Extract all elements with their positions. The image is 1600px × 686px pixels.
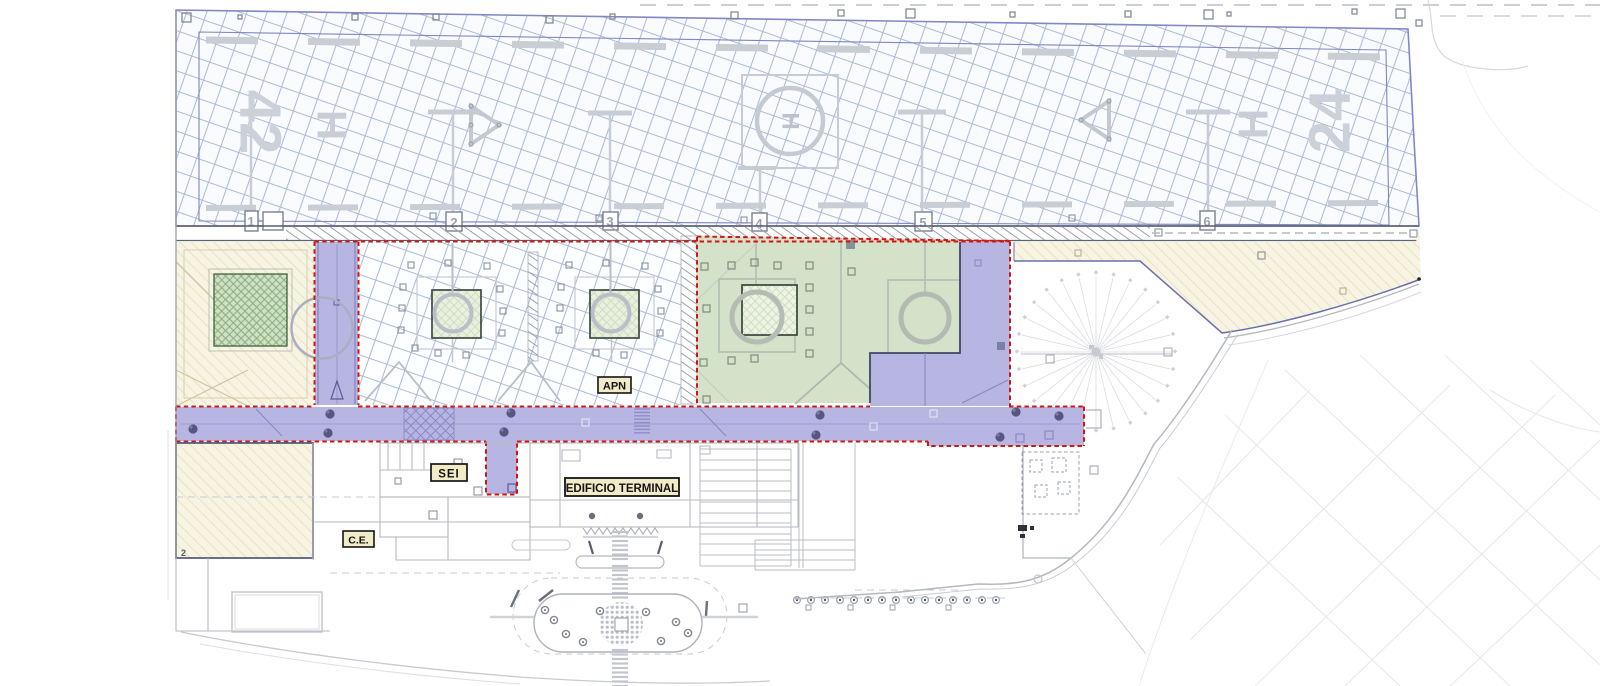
svg-text:6: 6 — [1203, 214, 1210, 229]
svg-text:H: H — [1230, 109, 1277, 139]
svg-text:H: H — [777, 112, 804, 129]
svg-text:42: 42 — [228, 90, 293, 155]
svg-text:2: 2 — [181, 548, 186, 558]
svg-text:3: 3 — [606, 214, 613, 229]
svg-text:APN: APN — [603, 381, 626, 393]
svg-text:EDIFICIO TERMINAL: EDIFICIO TERMINAL — [566, 483, 678, 495]
svg-text:SEI: SEI — [438, 469, 460, 481]
svg-text:H: H — [309, 110, 356, 140]
svg-text:24: 24 — [1298, 89, 1363, 154]
svg-text:C.E.: C.E. — [348, 535, 369, 547]
svg-text:1: 1 — [247, 214, 254, 229]
